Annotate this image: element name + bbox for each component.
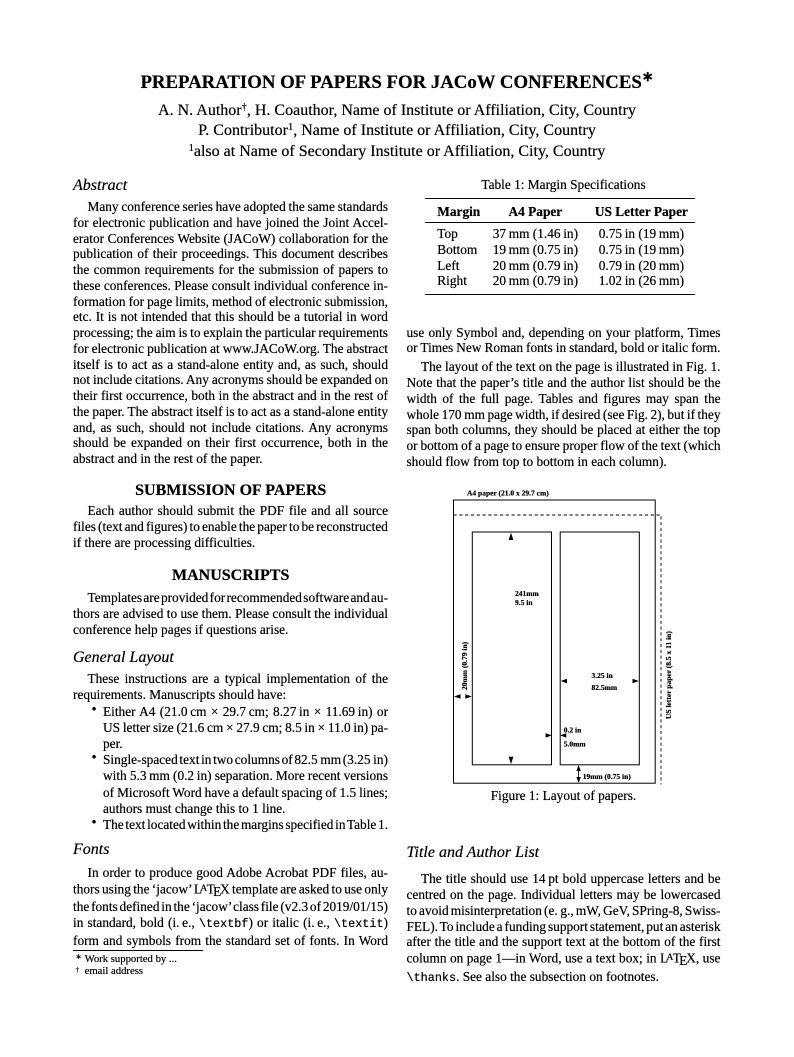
svg-text:A4 paper (21.0 x 29.7 cm): A4 paper (21.0 x 29.7 cm): [467, 489, 549, 498]
svg-text:US letter paper (8.5 x 11 in): US letter paper (8.5 x 11 in): [664, 631, 673, 719]
svg-text:241mm: 241mm: [515, 589, 539, 598]
svg-text:0.2 in: 0.2 in: [564, 726, 582, 735]
svg-text:82.5mm: 82.5mm: [592, 683, 618, 692]
svg-text:19mm (0.75 in): 19mm (0.75 in): [583, 772, 632, 781]
svg-text:3.25 in: 3.25 in: [592, 671, 614, 680]
svg-text:9.5 in: 9.5 in: [515, 598, 533, 607]
svg-text:5.0mm: 5.0mm: [564, 740, 587, 749]
svg-text:20mm (0.79 in): 20mm (0.79 in): [460, 641, 469, 690]
